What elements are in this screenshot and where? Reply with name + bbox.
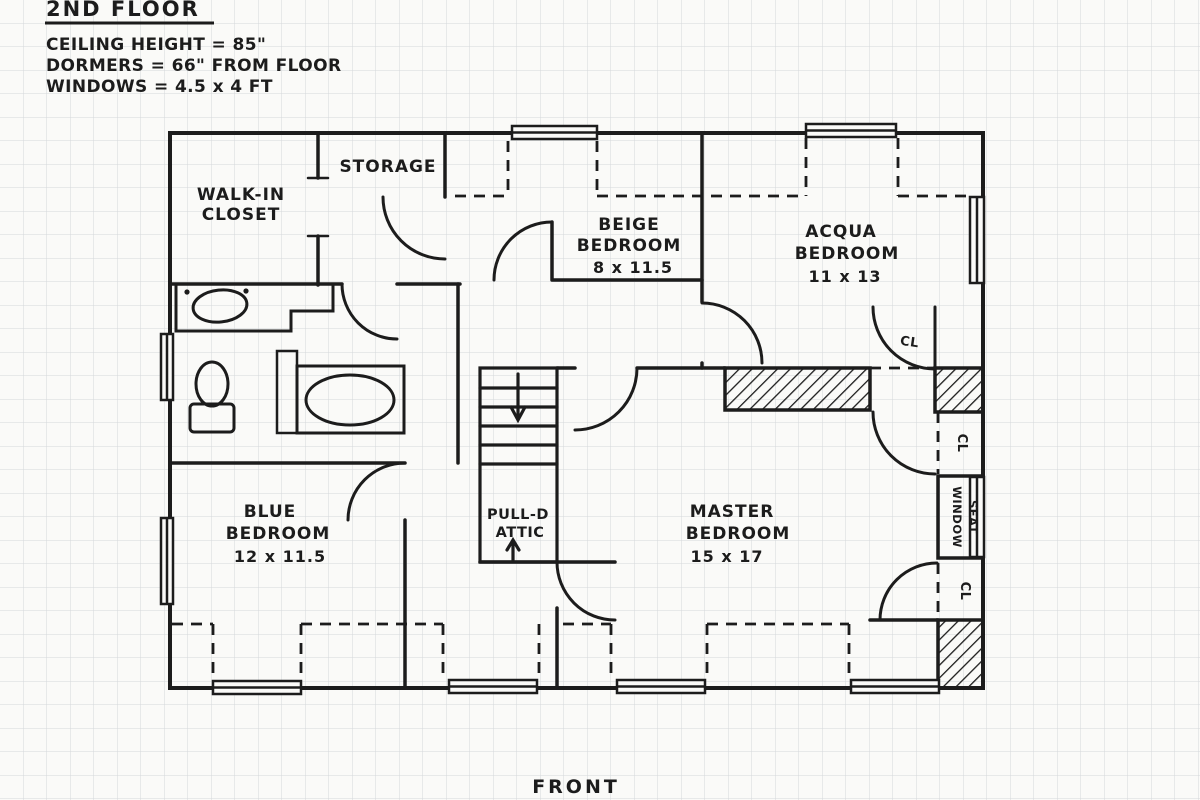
window-right-1 <box>970 197 984 283</box>
svg-text:PULL-D: PULL-D <box>487 507 549 523</box>
front-label: FRONT <box>532 776 620 798</box>
svg-text:MASTER: MASTER <box>690 502 775 522</box>
window-bottom-1 <box>213 681 301 694</box>
svg-text:WALK-IN: WALK-IN <box>197 185 285 205</box>
hatched-wall-corner <box>938 620 983 688</box>
svg-text:BEDROOM: BEDROOM <box>686 524 791 544</box>
label-closet-3: CL <box>957 582 972 601</box>
hatched-wall-right <box>935 368 983 412</box>
window-top-2 <box>806 124 896 137</box>
svg-text:WINDOW: WINDOW <box>950 486 964 548</box>
note-ceiling-height: CEILING HEIGHT = 85" <box>46 35 266 55</box>
svg-text:ACQUA: ACQUA <box>805 222 877 242</box>
label-closet-1: CL <box>899 334 920 351</box>
faucet-handle <box>243 288 248 293</box>
window-left-1 <box>161 334 173 400</box>
svg-text:SEAT: SEAT <box>966 500 980 534</box>
svg-text:12 x 11.5: 12 x 11.5 <box>234 547 326 566</box>
window-bottom-4 <box>851 680 939 693</box>
window-bottom-2 <box>449 680 537 693</box>
svg-text:8 x 11.5: 8 x 11.5 <box>593 258 673 277</box>
window-left-2 <box>161 518 173 604</box>
note-dormers: DORMERS = 66" FROM FLOOR <box>46 56 341 76</box>
svg-text:11 x 13: 11 x 13 <box>809 267 882 286</box>
floor-plan-page: 2ND FLOOR CEILING HEIGHT = 85" DORMERS =… <box>0 0 1200 800</box>
window-bottom-3 <box>617 680 705 693</box>
faucet-handle <box>184 289 189 294</box>
svg-text:ATTIC: ATTIC <box>496 525 545 541</box>
svg-text:15 x 17: 15 x 17 <box>691 547 764 566</box>
svg-text:BEIGE: BEIGE <box>598 215 659 235</box>
graph-grid <box>0 0 1200 800</box>
svg-text:CLOSET: CLOSET <box>202 205 281 225</box>
svg-text:BEDROOM: BEDROOM <box>577 236 682 256</box>
hatched-wall-master-top <box>725 368 870 410</box>
window-top-1 <box>512 126 597 139</box>
svg-text:BEDROOM: BEDROOM <box>795 244 900 264</box>
note-windows: WINDOWS = 4.5 x 4 FT <box>46 77 273 97</box>
label-closet-2: CL <box>954 434 969 453</box>
room-label-storage: STORAGE <box>339 157 436 177</box>
svg-text:BEDROOM: BEDROOM <box>226 524 331 544</box>
page-title: 2ND FLOOR <box>46 0 200 21</box>
floor-plan-sketch: 2ND FLOOR CEILING HEIGHT = 85" DORMERS =… <box>0 0 1200 800</box>
svg-text:BLUE: BLUE <box>244 502 297 522</box>
room-label-walkin-closet: WALK-IN CLOSET <box>197 185 285 225</box>
